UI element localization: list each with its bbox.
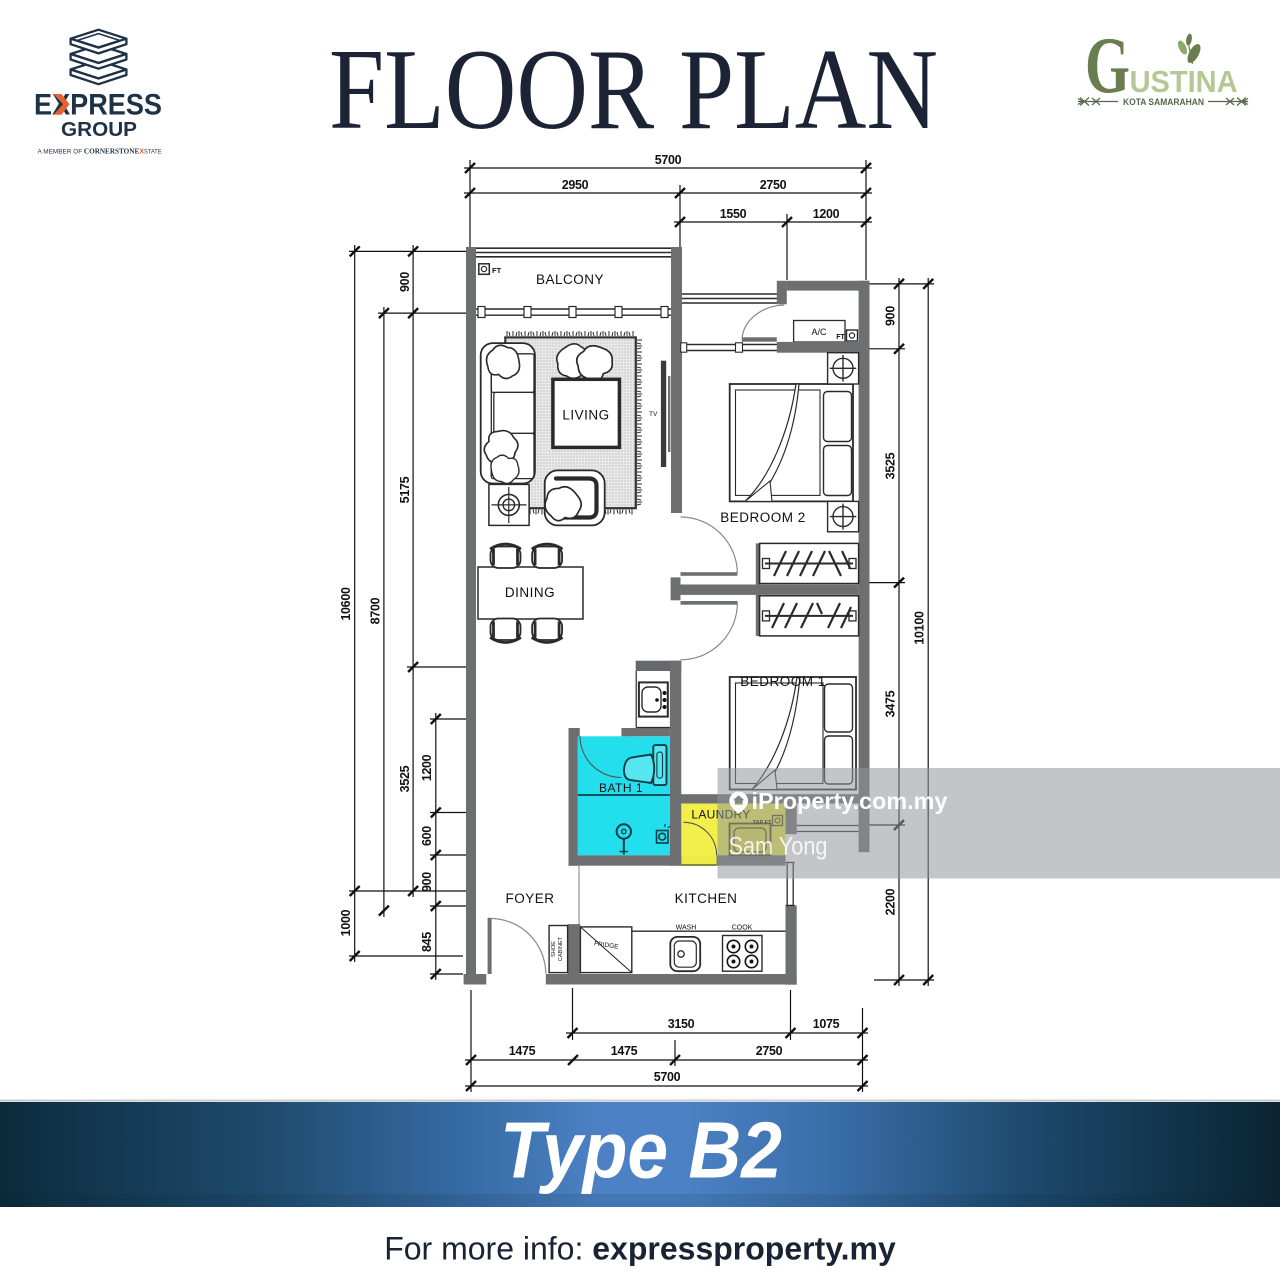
svg-text:3475: 3475 — [884, 690, 898, 717]
svg-text:900: 900 — [398, 272, 412, 292]
svg-text:SHOE: SHOE — [551, 941, 557, 957]
svg-text:5700: 5700 — [655, 153, 682, 167]
svg-text:Sam Yong: Sam Yong — [729, 833, 828, 861]
svg-text:1200: 1200 — [420, 754, 434, 781]
svg-text:2750: 2750 — [756, 1044, 783, 1058]
svg-text:1550: 1550 — [720, 207, 747, 221]
svg-text:USTINA: USTINA — [1130, 64, 1238, 99]
svg-text:1475: 1475 — [509, 1044, 536, 1058]
svg-text:2200: 2200 — [884, 888, 898, 915]
svg-text:900: 900 — [420, 872, 434, 892]
svg-text:WASH: WASH — [676, 925, 697, 932]
svg-text:10600: 10600 — [339, 587, 353, 621]
svg-text:2950: 2950 — [562, 178, 589, 192]
svg-text:1075: 1075 — [813, 1017, 840, 1031]
svg-text:845: 845 — [420, 932, 434, 952]
svg-text:600: 600 — [420, 826, 434, 846]
svg-text:900: 900 — [884, 306, 898, 326]
svg-text:FLOOR PLAN: FLOOR PLAN — [329, 26, 938, 154]
svg-text:For more info: expressproperty: For more info: expressproperty.my — [384, 1231, 896, 1267]
svg-text:FOYER: FOYER — [505, 891, 554, 906]
svg-text:1475: 1475 — [611, 1044, 638, 1058]
svg-text:iProperty.com.my: iProperty.com.my — [752, 788, 948, 814]
svg-text:EXPRESS: EXPRESS — [34, 89, 162, 122]
svg-text:8700: 8700 — [369, 597, 383, 624]
svg-text:BEDROOM 1: BEDROOM 1 — [740, 674, 826, 689]
svg-text:KOTA SAMARAHAN: KOTA SAMARAHAN — [1123, 97, 1204, 107]
svg-text:10100: 10100 — [913, 611, 927, 645]
svg-text:2750: 2750 — [760, 178, 787, 192]
svg-text:GROUP: GROUP — [61, 118, 137, 141]
svg-text:DINING: DINING — [505, 585, 555, 600]
svg-text:KITCHEN: KITCHEN — [675, 891, 738, 906]
svg-text:Type B2: Type B2 — [500, 1106, 782, 1195]
svg-text:A/C: A/C — [811, 327, 827, 337]
svg-text:5700: 5700 — [654, 1070, 681, 1084]
svg-text:3525: 3525 — [398, 765, 412, 792]
svg-text:TV: TV — [649, 411, 658, 418]
svg-text:COOK: COOK — [732, 925, 753, 932]
svg-text:BALCONY: BALCONY — [536, 272, 604, 287]
svg-text:BATH 1: BATH 1 — [599, 781, 643, 795]
svg-text:BEDROOM 2: BEDROOM 2 — [720, 510, 806, 525]
svg-text:5175: 5175 — [398, 476, 412, 503]
svg-text:LIVING: LIVING — [562, 408, 609, 423]
svg-text:CABINET: CABINET — [558, 936, 564, 961]
svg-text:FT: FT — [492, 266, 502, 275]
svg-text:3150: 3150 — [668, 1017, 695, 1031]
svg-text:A MEMBER OF CORNERSTONEXSTATE: A MEMBER OF CORNERSTONEXSTATE — [38, 146, 162, 155]
svg-text:3525: 3525 — [884, 452, 898, 479]
svg-text:FT: FT — [836, 334, 845, 341]
svg-text:1200: 1200 — [813, 207, 840, 221]
svg-text:1000: 1000 — [339, 909, 353, 936]
